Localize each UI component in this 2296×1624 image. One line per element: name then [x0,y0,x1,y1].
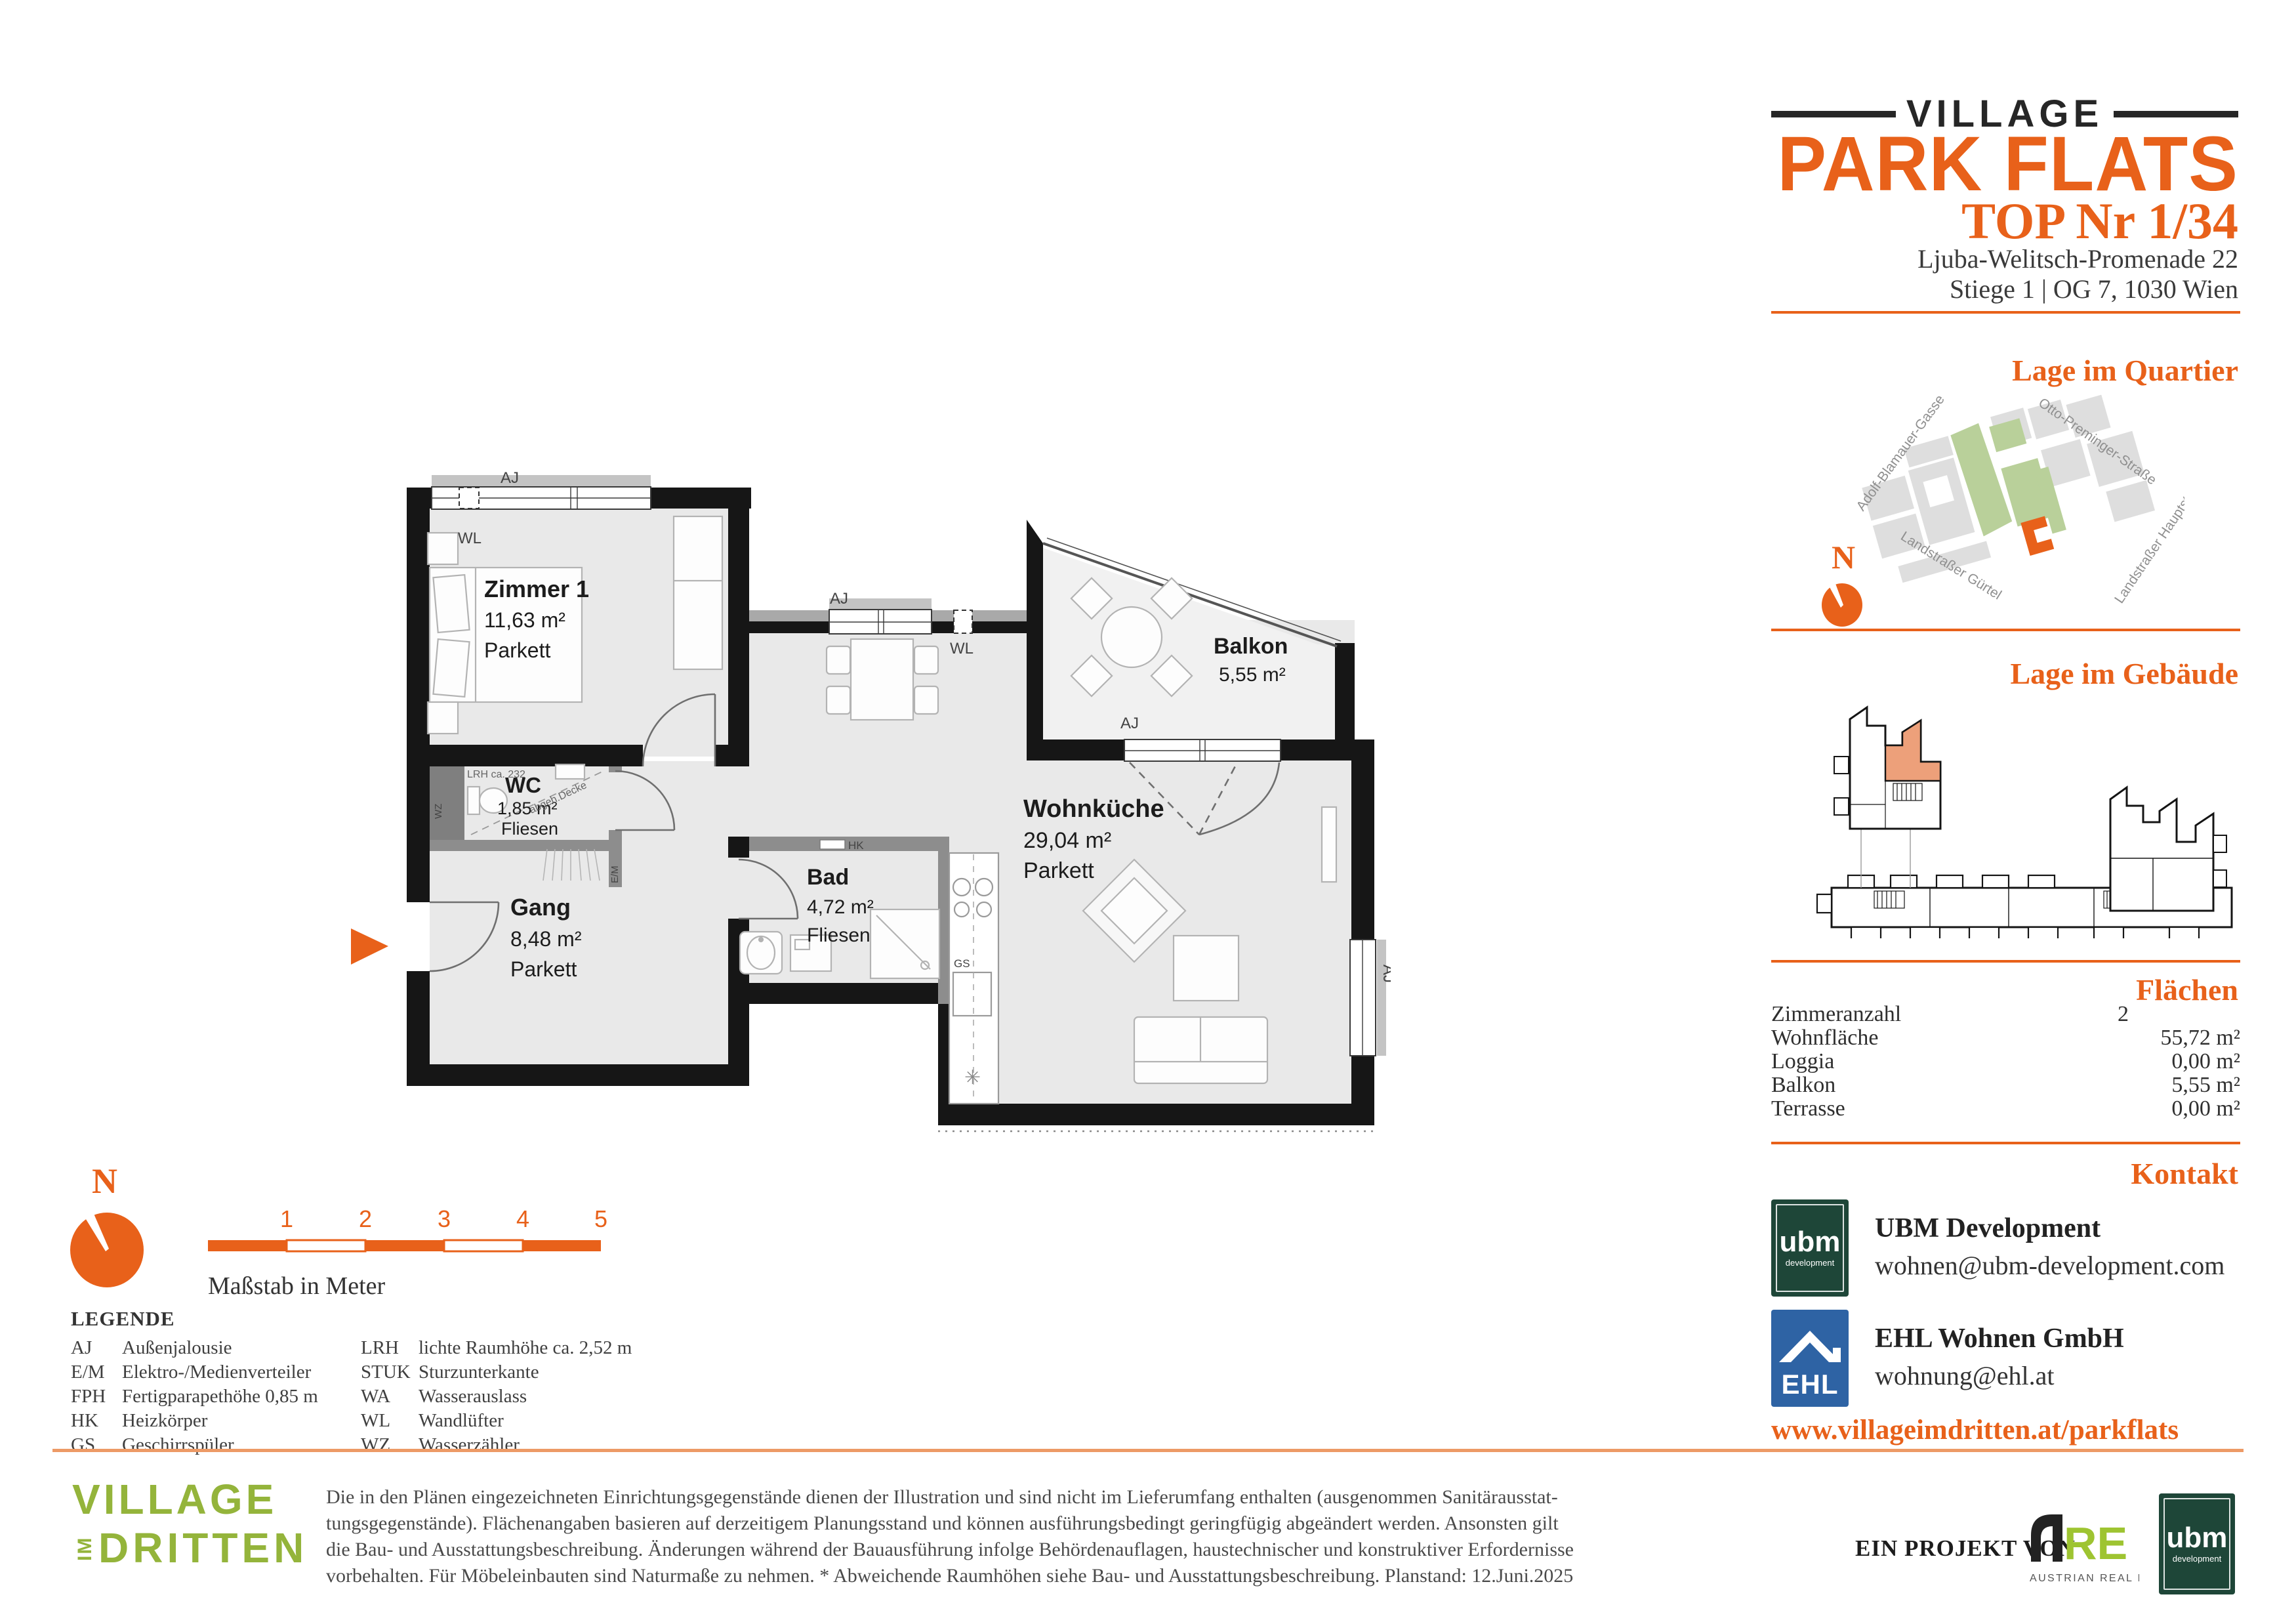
wz-label: WZ [433,804,444,819]
legend-col1: AJAußenjalousie E/MElektro-/Medienvertei… [71,1336,318,1457]
scale-bar: 1 2 3 4 5 [203,1201,613,1260]
nightstand [428,533,458,564]
balcony-door-window [1124,739,1281,761]
scale-caption: Maßstab in Meter [208,1272,385,1301]
dining-table [851,639,913,720]
aj-label: AJ [830,590,848,608]
divider-flaechen [1771,1142,2240,1144]
section-title-kontakt: Kontakt [1771,1156,2238,1191]
brand-line-left [1771,111,1896,117]
gs-label: GS [954,957,970,970]
room-name: Zimmer 1 [484,575,589,602]
toilet [468,787,480,814]
address-line-2: Stiege 1 | OG 7, 1030 Wien [1771,274,2238,304]
north-compass-icon: N [66,1155,164,1296]
building-location-drawing [1812,694,2245,938]
room-floor: Parkett [510,957,577,981]
row-label: Loggia [1771,1050,1834,1073]
disclaimer-line: vorbehalten. Für Möbeleinbauten sind Nat… [326,1563,1507,1589]
chair [914,686,938,714]
disclaimer: Die in den Plänen eingezeichneten Einric… [326,1484,1507,1589]
sink-icon: ✳ [964,1067,981,1089]
legend-abbr: LRH [361,1336,419,1360]
section-title-quartier: Lage im Quartier [1771,353,2238,388]
contact-name-ehl: EHL Wohnen GmbH [1875,1323,2124,1354]
legend-text: Elektro-/Medienverteiler [122,1360,311,1385]
divider-header [1771,311,2240,314]
village-im-dritten-logo: VILLAGE [72,1475,277,1524]
contact-email-ubm[interactable]: wohnen@ubm-development.com [1875,1250,2224,1281]
legend-text: Wasserauslass [419,1385,527,1409]
legend-abbr: STUK [361,1360,419,1385]
are-logo: RE AUSTRIAN REAL ESTATE [2024,1508,2139,1588]
nightstand [428,702,458,734]
row-value: 55,72 m² [2160,1026,2240,1050]
row-label: Zimmeranzahl [1771,1003,1901,1026]
svg-text:RE: RE [2064,1518,2127,1569]
chair [827,686,850,714]
legend-text: Wandlüfter [419,1409,504,1433]
table-row: Zimmeranzahl2 [1771,1003,2240,1026]
coffee-table [1174,936,1239,1001]
wandluefter-icon [459,488,479,509]
svg-text:4: 4 [516,1205,529,1232]
round-table [1101,607,1162,667]
map-north-compass-icon: N [1814,538,1887,633]
entrance-arrow-icon [351,928,388,965]
row-value: 2 [2118,1003,2129,1026]
brand-line-right [2114,111,2238,117]
svg-text:3: 3 [438,1205,451,1232]
room-area: 4,72 m² [807,896,874,918]
legend-text: Fertigparapethöhe 0,85 m [122,1385,318,1409]
legend-col2: LRHlichte Raumhöhe ca. 2,52 m STUKSturzu… [361,1336,632,1457]
pillow [433,639,469,697]
svg-text:AUSTRIAN REAL ESTATE: AUSTRIAN REAL ESTATE [2030,1573,2139,1584]
room-area: 29,04 m² [1023,828,1111,853]
table-row: Loggia0,00 m² [1771,1050,2240,1073]
pillow [433,575,469,633]
section-title-gebaeude: Lage im Gebäude [1771,656,2238,691]
legend-text: Wasserzähler [419,1433,520,1457]
ubm-footer-logo: ubm development [2159,1493,2235,1594]
disclaimer-line: die Bau- und Ausstattungsbeschreibung. Ä… [326,1537,1507,1563]
legend-abbr: GS [71,1433,122,1457]
floorplan-sheet: VILLAGE PARK FLATS TOP Nr 1/34 Ljuba-Wel… [0,0,2296,1624]
room-floor: Parkett [484,638,550,662]
website-link[interactable]: www.villageimdritten.at/parkflats [1771,1414,2179,1446]
room-name: Wohnküche [1023,795,1164,823]
legend-text: Sturzunterkante [419,1360,539,1385]
floor-plan: ✳ Zimmer 1 [341,446,1391,1142]
legend-title: LEGENDE [71,1307,175,1331]
legend-abbr: HK [71,1409,122,1433]
balcony-floor [1043,548,1335,739]
divider-quartier [1771,629,2240,631]
legend-abbr: FPH [71,1385,122,1409]
radiator-icon [820,840,845,849]
table-row: Terrasse0,00 m² [1771,1097,2240,1121]
row-label: Wohnfläche [1771,1026,1878,1050]
lrh-note: LRH ca. 232 [467,769,525,780]
aj-label: AJ [501,469,519,487]
disclaimer-line: Die in den Plänen eingezeichneten Einric… [326,1484,1507,1510]
area-table: Zimmeranzahl2 Wohnfläche55,72 m² Loggia0… [1771,1003,2240,1121]
ubm-logo: ubm development [1771,1199,1849,1297]
svg-text:1: 1 [280,1205,293,1232]
room-area: 8,48 m² [510,927,582,951]
legend-abbr: E/M [71,1360,122,1385]
aj-label: AJ [1380,965,1391,983]
row-value: 0,00 m² [2171,1050,2240,1073]
row-label: Terrasse [1771,1097,1845,1121]
legend-abbr: AJ [71,1336,122,1360]
legend-abbr: WA [361,1385,419,1409]
em-label: E/M [609,865,621,883]
row-value: 5,55 m² [2171,1073,2240,1097]
unit-number-title: TOP Nr 1/34 [1771,192,2238,251]
room-floor: Fliesen [807,925,871,946]
highlighted-unit [1885,720,1940,781]
room-area: 5,55 m² [1219,664,1286,686]
chair [827,646,850,674]
table-row: Wohnfläche55,72 m² [1771,1026,2240,1050]
aj-label: AJ [1120,715,1139,732]
room-area: 11,63 m² [484,608,565,632]
map-highlight-building [2020,516,2054,556]
wandluefter-icon [954,610,972,633]
svg-text:2: 2 [359,1205,372,1232]
room-name: Gang [510,894,571,921]
wl-label: WL [458,530,482,547]
room-name: Bad [807,865,849,890]
contact-name-ubm: UBM Development [1875,1213,2101,1244]
footer-divider [52,1449,2244,1452]
row-label: Balkon [1771,1073,1835,1097]
village-im-dritten-logo-row2: IM DRITTEN [72,1524,308,1572]
legend-abbr: WL [361,1409,419,1433]
svg-text:EHL: EHL [1782,1369,1839,1400]
address-line-1: Ljuba-Welitsch-Promenade 22 [1771,244,2238,274]
svg-text:5: 5 [594,1205,607,1232]
table-row: Balkon5,55 m² [1771,1073,2240,1097]
legend-text: Geschirrspüler [122,1433,234,1457]
legend-text: Außenjalousie [122,1336,232,1360]
quartier-map: Adolf-Blamauer-Gasse Otto-Preminger-Stra… [1843,390,2184,607]
row-value: 0,00 m² [2171,1097,2240,1121]
ehl-logo: EHL [1771,1310,1849,1407]
legend-abbr: WZ [361,1433,419,1457]
shelf [556,764,584,779]
legend-text: Heizkörper [122,1409,207,1433]
wohnkueche-window [1350,940,1386,1056]
divider-gebaeude [1771,960,2240,963]
room-floor: Fliesen [501,819,558,839]
wardrobe [674,516,722,669]
legend-text: lichte Raumhöhe ca. 2,52 m [419,1336,632,1360]
chair [914,646,938,674]
svg-text:N: N [92,1161,117,1201]
svg-text:N: N [1832,539,1855,575]
disclaimer-line: tungsgegenstände). Flächenangaben basier… [326,1510,1507,1537]
room-floor: Parkett [1023,858,1094,883]
room-name: Balkon [1214,634,1288,659]
sideboard [1322,807,1336,882]
wl-label: WL [950,640,974,657]
contact-email-ehl[interactable]: wohnung@ehl.at [1875,1360,2054,1391]
hk-label: HK [848,839,864,852]
